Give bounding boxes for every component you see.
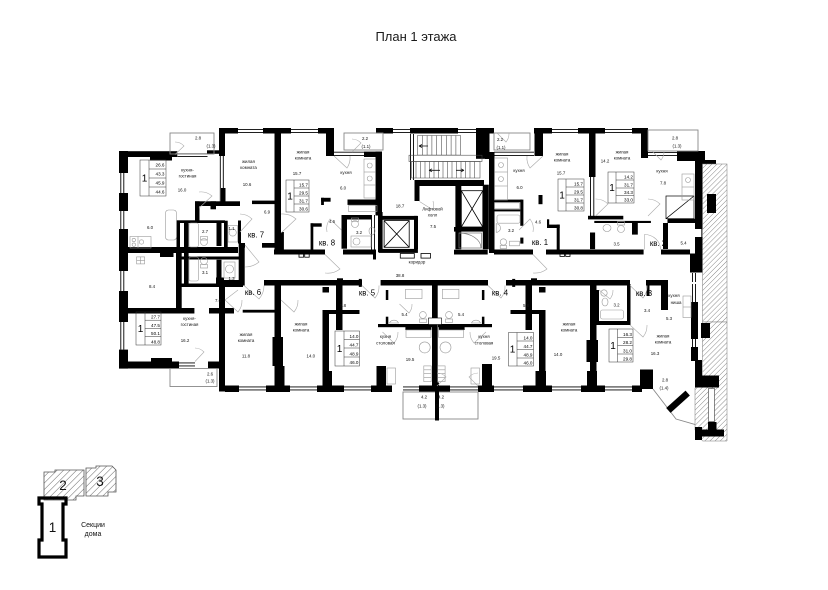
svg-text:кв. 1: кв. 1: [532, 238, 548, 247]
svg-text:комната: комната: [561, 328, 578, 333]
svg-text:жилая: жилая: [616, 150, 629, 155]
svg-text:5.4: 5.4: [680, 241, 687, 246]
svg-text:1: 1: [142, 174, 148, 185]
svg-text:5.4: 5.4: [458, 312, 465, 317]
svg-text:(1.1): (1.1): [361, 144, 371, 149]
svg-text:3.2: 3.2: [356, 230, 363, 235]
svg-text:3.2: 3.2: [508, 228, 515, 233]
svg-text:План 1 этажа: План 1 этажа: [375, 29, 457, 44]
svg-text:комната: комната: [554, 158, 571, 163]
svg-text:46.0: 46.0: [350, 360, 359, 365]
svg-text:2.7: 2.7: [202, 229, 209, 234]
svg-text:кв. 6: кв. 6: [245, 288, 261, 297]
svg-text:5.4: 5.4: [401, 312, 408, 317]
svg-text:столовая: столовая: [376, 341, 395, 346]
svg-text:комната: комната: [238, 338, 255, 343]
svg-text:1: 1: [138, 324, 144, 335]
svg-text:3.1: 3.1: [202, 270, 209, 275]
svg-text:Лифтовой: Лифтовой: [422, 207, 443, 212]
svg-text:1: 1: [49, 520, 57, 535]
svg-text:44.6: 44.6: [156, 190, 165, 195]
svg-text:жилая: жилая: [563, 322, 576, 327]
svg-text:(1.1): (1.1): [496, 145, 506, 150]
svg-text:2.2: 2.2: [497, 137, 504, 142]
svg-text:комната: комната: [614, 156, 631, 161]
svg-text:6.0: 6.0: [516, 185, 523, 190]
svg-text:48.9: 48.9: [524, 353, 533, 358]
svg-text:43.3: 43.3: [156, 172, 165, 177]
svg-text:44.7: 44.7: [350, 343, 359, 348]
svg-text:гостиная: гостиная: [179, 174, 197, 179]
svg-text:гостиная: гостиная: [181, 322, 199, 327]
svg-text:жилая: жилая: [240, 332, 253, 337]
svg-text:1: 1: [609, 183, 615, 194]
svg-text:6.9: 6.9: [264, 210, 271, 215]
svg-text:7.0: 7.0: [215, 298, 222, 303]
svg-text:жилая: жилая: [657, 334, 670, 339]
svg-text:11.8: 11.8: [242, 354, 251, 359]
svg-text:6.0: 6.0: [340, 186, 347, 191]
svg-text:кв. 4: кв. 4: [492, 289, 509, 298]
svg-text:кв. 8: кв. 8: [319, 239, 335, 248]
svg-text:4.6: 4.6: [535, 220, 542, 225]
svg-text:31.7: 31.7: [574, 198, 583, 203]
svg-text:коридор: коридор: [409, 260, 426, 265]
svg-text:(1.3): (1.3): [205, 379, 215, 384]
svg-text:4.2: 4.2: [421, 395, 428, 400]
svg-text:26.6: 26.6: [156, 163, 165, 168]
svg-text:2: 2: [59, 478, 67, 493]
svg-text:34.3: 34.3: [624, 190, 633, 195]
svg-text:кухня: кухня: [668, 293, 680, 298]
svg-text:14.0: 14.0: [307, 354, 316, 359]
svg-text:7.8: 7.8: [660, 181, 667, 186]
svg-text:столовая: столовая: [475, 341, 494, 346]
svg-text:1: 1: [610, 341, 616, 352]
svg-text:жилая: жилая: [295, 322, 308, 327]
svg-text:14.0: 14.0: [524, 336, 533, 341]
svg-text:50.1: 50.1: [151, 331, 160, 336]
svg-text:3.4: 3.4: [644, 308, 651, 313]
svg-text:холл: холл: [428, 213, 438, 218]
svg-text:кв. 5: кв. 5: [359, 289, 376, 298]
svg-text:жилая: жилая: [556, 152, 569, 157]
svg-text:2.6: 2.6: [207, 372, 214, 377]
svg-text:29.8: 29.8: [623, 357, 632, 362]
svg-text:46.0: 46.0: [524, 361, 533, 366]
svg-text:14.0: 14.0: [554, 352, 563, 357]
svg-text:1.1: 1.1: [228, 226, 235, 231]
svg-text:(1.3): (1.3): [672, 144, 682, 149]
svg-text:10.6: 10.6: [243, 182, 252, 187]
svg-text:29.5: 29.5: [299, 191, 308, 196]
svg-text:6.0: 6.0: [147, 225, 154, 230]
svg-text:15.7: 15.7: [574, 182, 583, 187]
svg-text:14.2: 14.2: [624, 175, 633, 180]
svg-text:4.2: 4.2: [438, 395, 445, 400]
svg-text:2.8: 2.8: [662, 378, 669, 383]
svg-text:31.7: 31.7: [299, 199, 308, 204]
svg-text:1: 1: [559, 191, 565, 202]
svg-text:кв. 3: кв. 3: [636, 289, 652, 298]
svg-text:5.3: 5.3: [666, 316, 673, 321]
svg-text:(1.3): (1.3): [417, 404, 427, 409]
svg-text:4.6: 4.6: [329, 219, 336, 224]
svg-text:жилая: жилая: [297, 150, 310, 155]
svg-text:5.8: 5.8: [340, 303, 347, 308]
svg-text:комната: комната: [295, 156, 312, 161]
svg-text:1: 1: [510, 345, 516, 356]
svg-text:кв. 7: кв. 7: [248, 231, 264, 240]
svg-text:47.5: 47.5: [151, 323, 160, 328]
svg-text:18.7: 18.7: [396, 204, 405, 209]
svg-text:19.5: 19.5: [492, 356, 501, 361]
svg-text:31.0: 31.0: [623, 349, 632, 354]
svg-text:кухня-: кухня-: [183, 316, 196, 321]
svg-text:2.8: 2.8: [672, 136, 679, 141]
svg-text:48.8: 48.8: [151, 340, 160, 345]
svg-text:16.3: 16.3: [623, 332, 632, 337]
svg-text:7.5: 7.5: [430, 224, 437, 229]
svg-text:33.0: 33.0: [624, 198, 633, 203]
svg-text:(1.3): (1.3): [435, 404, 445, 409]
svg-text:Секции: Секции: [81, 522, 105, 529]
svg-text:1: 1: [287, 192, 293, 203]
svg-text:кухня: кухня: [656, 169, 668, 174]
svg-text:комната: комната: [293, 328, 310, 333]
svg-text:3.5: 3.5: [613, 242, 620, 247]
svg-text:45.9: 45.9: [156, 181, 165, 186]
svg-text:15.7: 15.7: [293, 171, 302, 176]
svg-text:16.2: 16.2: [181, 338, 190, 343]
svg-text:1: 1: [337, 344, 343, 355]
svg-text:15.7: 15.7: [299, 183, 308, 188]
svg-text:комната: комната: [655, 340, 672, 345]
svg-text:1.3: 1.3: [228, 276, 235, 281]
svg-text:2.8: 2.8: [195, 136, 202, 141]
svg-text:ниша: ниша: [671, 300, 682, 305]
svg-text:15.7: 15.7: [557, 171, 566, 176]
svg-text:48.9: 48.9: [350, 352, 359, 357]
svg-text:30.8: 30.8: [574, 206, 583, 211]
svg-text:8.4: 8.4: [149, 284, 156, 289]
svg-text:(1.4): (1.4): [659, 386, 669, 391]
svg-text:38.8: 38.8: [396, 273, 405, 278]
svg-text:28.2: 28.2: [623, 340, 632, 345]
svg-text:16.3: 16.3: [651, 351, 660, 356]
svg-text:44.7: 44.7: [524, 344, 533, 349]
svg-text:кухня: кухня: [380, 334, 392, 339]
svg-text:29.5: 29.5: [574, 190, 583, 195]
svg-text:27.7: 27.7: [151, 315, 160, 320]
svg-text:5.8: 5.8: [523, 303, 530, 308]
svg-text:3: 3: [96, 474, 104, 489]
svg-text:14.2: 14.2: [601, 159, 610, 164]
svg-text:дома: дома: [85, 531, 102, 538]
svg-text:14.0: 14.0: [350, 334, 359, 339]
svg-text:(1.3): (1.3): [206, 144, 216, 149]
svg-text:3.2: 3.2: [613, 303, 620, 308]
svg-text:16.0: 16.0: [178, 188, 187, 193]
svg-text:кухня: кухня: [513, 168, 525, 173]
svg-text:31.7: 31.7: [624, 183, 633, 188]
svg-text:2.2: 2.2: [362, 136, 369, 141]
svg-text:30.6: 30.6: [299, 207, 308, 212]
svg-text:19.5: 19.5: [406, 357, 415, 362]
svg-text:кухня-: кухня-: [181, 168, 194, 173]
svg-text:кухня: кухня: [340, 170, 352, 175]
svg-text:комната: комната: [240, 165, 257, 170]
svg-text:кухня: кухня: [478, 334, 490, 339]
svg-text:кв. 2: кв. 2: [650, 239, 666, 248]
svg-text:жилая: жилая: [242, 159, 255, 164]
